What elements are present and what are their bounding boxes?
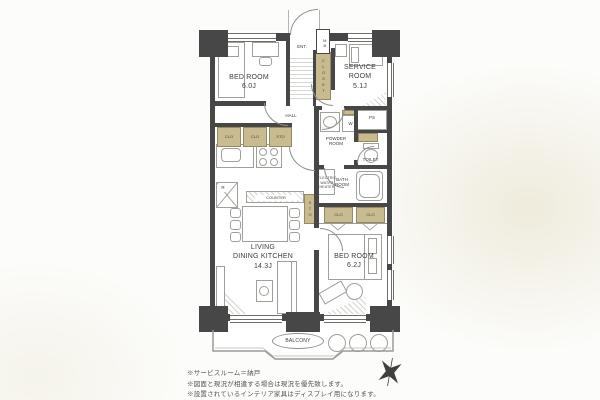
storage-box: STO [269, 127, 292, 147]
counter: COUNTER [246, 191, 304, 203]
chair [289, 208, 300, 218]
tv-board [216, 266, 225, 308]
refrigerator: R [216, 182, 238, 208]
room-label-bath: BATH ROOM [330, 176, 354, 189]
window-sliding-door [230, 315, 282, 323]
wall-segment [314, 250, 319, 316]
dining-table [242, 206, 288, 242]
room-label-bedroom-bottom: BED ROOM 6.2J [322, 250, 386, 272]
window [387, 236, 394, 264]
chair [289, 232, 300, 242]
window [348, 33, 372, 42]
chair [289, 220, 300, 230]
room-size: 5.1J [353, 82, 367, 91]
room-name: BED ROOM [229, 73, 269, 82]
wall-segment [366, 314, 372, 321]
meter-box: MB [316, 29, 330, 54]
pipe-space-label: PS [357, 112, 387, 124]
balcony-label: BALCONY [272, 333, 324, 349]
note-line: ※設置されているインテリア家具はディスプレイ用になります。 [187, 390, 380, 400]
burner [259, 158, 267, 166]
counter-label: COUNTER [255, 195, 297, 201]
room-label-ldk: LIVING DINING KITCHEN 14.3J [222, 242, 304, 272]
room-name: BED ROOM [334, 252, 374, 261]
room-label-bedroom-top: BED ROOM 6.0J [214, 70, 284, 94]
window [228, 33, 276, 42]
wall-segment [344, 165, 387, 169]
shelf [335, 44, 347, 57]
sink-basin [221, 148, 241, 162]
wall-segment [215, 101, 266, 106]
burner [259, 148, 267, 156]
window-sliding-door [324, 315, 366, 323]
wall-segment [316, 165, 324, 169]
pillar [199, 30, 228, 57]
room-label-entrance: ENT. [288, 43, 316, 51]
chair [230, 232, 241, 242]
refrigerator-label: R [218, 184, 228, 192]
chair [346, 283, 363, 300]
room-label-hall: HALL [277, 112, 305, 120]
plant [259, 286, 269, 296]
room-name: LIVING DINING KITCHEN [233, 243, 293, 261]
closet-box: CLO [324, 207, 353, 223]
room-size: 14.3J [254, 262, 272, 271]
wall-segment [282, 314, 288, 321]
wall-segment [344, 106, 387, 110]
wall-segment [215, 314, 230, 321]
room-name: SERVICE ROOM [344, 63, 376, 81]
entry-step-hatch [289, 58, 314, 102]
bathtub-inner [359, 174, 380, 198]
chair [230, 220, 241, 230]
room-label-service: SERVICE ROOM 5.1J [331, 60, 389, 94]
planter [370, 334, 388, 352]
note-line: ※サービスルーム＝納戸 [187, 369, 380, 380]
pillar [370, 306, 400, 332]
footnotes: ※サービスルーム＝納戸 ※図面と現況が相違する場合は現況を優先致します。 ※設置… [187, 369, 380, 400]
planter [349, 334, 367, 352]
burner [270, 148, 278, 156]
wall-segment [356, 130, 387, 133]
desk [252, 42, 279, 57]
burner [270, 158, 278, 166]
wall-segment [316, 203, 387, 207]
chair [259, 57, 272, 66]
closet-box: CLO [243, 127, 267, 147]
room-size: 6.0J [242, 82, 256, 91]
pillar [372, 30, 400, 57]
closet-box: CLO [356, 207, 385, 223]
window [387, 270, 394, 300]
floorplan-canvas: R COUNTER W PS ELECTRIC WATER HEATER CLO… [0, 0, 600, 400]
note-line: ※図面と現況が相違する場合は現況を優先致します。 [187, 380, 380, 391]
toilet-shelf [358, 133, 378, 142]
planter [328, 334, 346, 352]
room-label-powder: POWDER ROOM [316, 135, 356, 149]
chair [230, 208, 241, 218]
meter-box-label: MB [321, 33, 327, 52]
wall-segment [330, 33, 348, 41]
room-size: 6.2J [347, 261, 361, 270]
wall-line [319, 223, 387, 224]
closet-box: CLO [217, 127, 241, 147]
room-label-toilet: TOILET [354, 157, 387, 164]
